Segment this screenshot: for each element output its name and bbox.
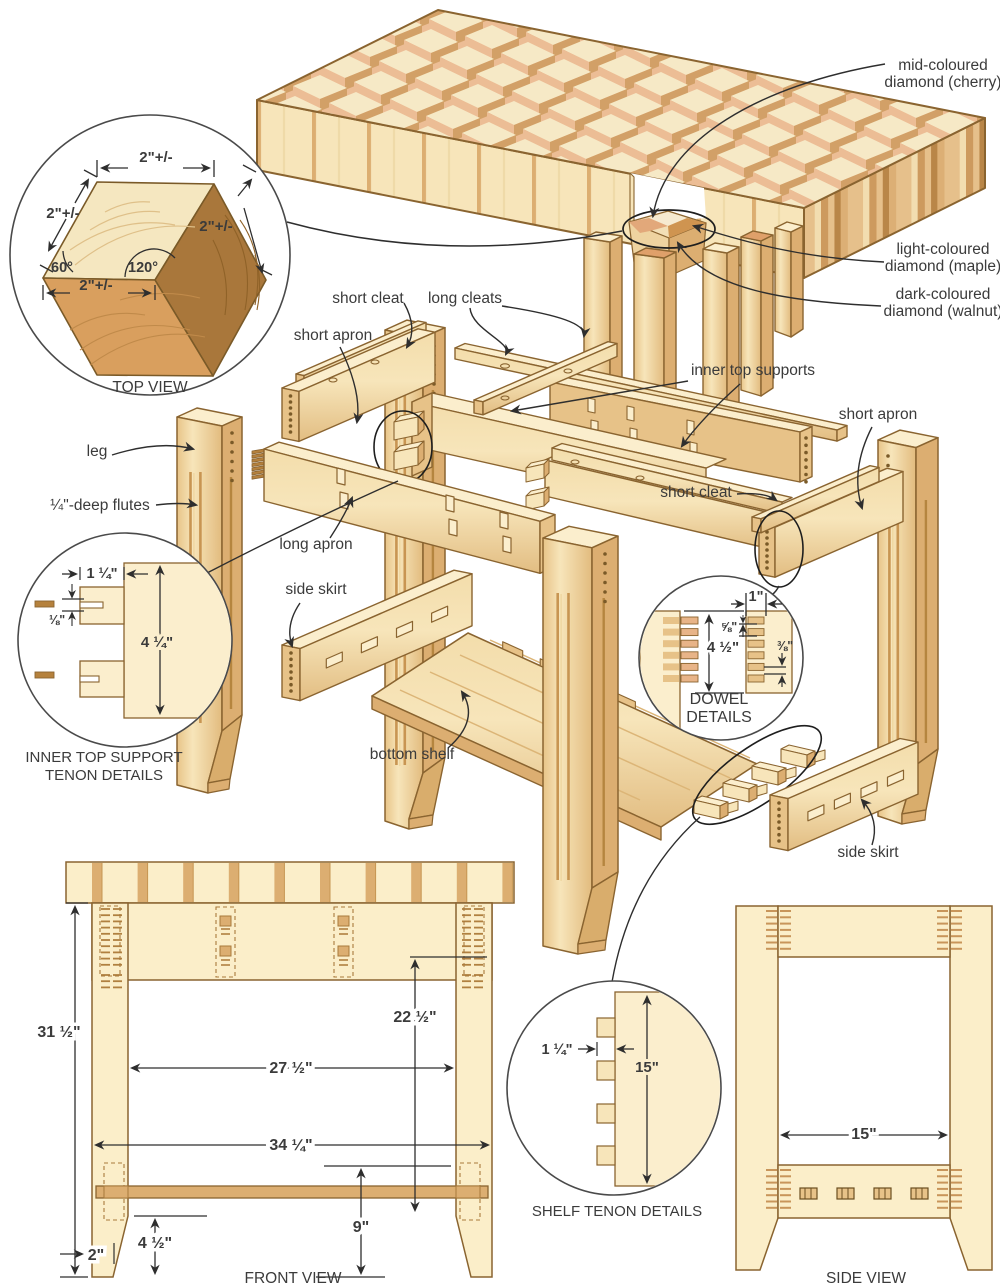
svg-text:side skirt: side skirt <box>837 844 899 861</box>
svg-text:2"+/-: 2"+/- <box>139 149 172 166</box>
svg-text:short apron: short apron <box>839 406 917 423</box>
svg-text:120°: 120° <box>128 260 158 276</box>
svg-text:long apron: long apron <box>279 536 352 553</box>
svg-text:2"+/-: 2"+/- <box>46 205 79 222</box>
svg-text:⅛": ⅛" <box>49 613 65 627</box>
svg-text:dark-coloured: dark-coloured <box>896 286 991 303</box>
svg-text:light-coloured: light-coloured <box>896 241 989 258</box>
svg-text:mid-coloured: mid-coloured <box>898 57 988 74</box>
svg-text:31 ½": 31 ½" <box>37 1024 80 1041</box>
svg-text:60°: 60° <box>51 260 73 276</box>
svg-text:leg: leg <box>87 443 108 460</box>
svg-text:bottom shelf: bottom shelf <box>370 746 455 763</box>
svg-text:SHELF TENON DETAILS: SHELF TENON DETAILS <box>532 1203 702 1220</box>
svg-text:inner top supports: inner top supports <box>691 362 815 379</box>
svg-text:FRONT VIEW: FRONT VIEW <box>244 1270 341 1287</box>
svg-text:1 ¼": 1 ¼" <box>86 566 117 582</box>
svg-text:4 ¼": 4 ¼" <box>141 634 173 651</box>
svg-text:INNER TOP SUPPORT: INNER TOP SUPPORT <box>25 749 182 766</box>
svg-text:diamond (walnut): diamond (walnut) <box>884 303 1000 320</box>
svg-text:short cleat: short cleat <box>660 484 732 501</box>
svg-text:15": 15" <box>851 1126 876 1143</box>
svg-text:2"+/-: 2"+/- <box>79 277 112 294</box>
svg-text:⅝": ⅝" <box>721 620 737 634</box>
svg-text:diamond (cherry): diamond (cherry) <box>884 74 1000 91</box>
svg-text:side skirt: side skirt <box>285 581 347 598</box>
svg-text:TENON DETAILS: TENON DETAILS <box>45 767 163 784</box>
svg-text:15": 15" <box>635 1059 659 1076</box>
svg-text:2": 2" <box>88 1247 104 1264</box>
svg-text:4 ½": 4 ½" <box>707 639 739 656</box>
svg-text:22 ½": 22 ½" <box>393 1009 436 1026</box>
svg-text:4 ½": 4 ½" <box>138 1235 172 1252</box>
svg-text:⅜": ⅜" <box>777 639 793 653</box>
svg-text:¼"-deep flutes: ¼"-deep flutes <box>50 497 150 514</box>
svg-text:DETAILS: DETAILS <box>686 709 752 726</box>
svg-text:DOWEL: DOWEL <box>690 691 749 708</box>
svg-text:1 ¼": 1 ¼" <box>541 1042 572 1058</box>
svg-text:short cleat: short cleat <box>332 290 404 307</box>
svg-text:short apron: short apron <box>294 327 372 344</box>
svg-text:9": 9" <box>353 1219 369 1236</box>
svg-text:1": 1" <box>749 589 764 605</box>
svg-text:34 ¼": 34 ¼" <box>269 1137 312 1154</box>
svg-text:diamond (maple): diamond (maple) <box>885 258 1000 275</box>
svg-text:2"+/-: 2"+/- <box>199 218 232 235</box>
svg-text:long cleats: long cleats <box>428 290 502 307</box>
svg-text:SIDE VIEW: SIDE VIEW <box>826 1270 906 1287</box>
svg-text:27 ½": 27 ½" <box>269 1060 312 1077</box>
svg-text:TOP VIEW: TOP VIEW <box>112 379 188 396</box>
